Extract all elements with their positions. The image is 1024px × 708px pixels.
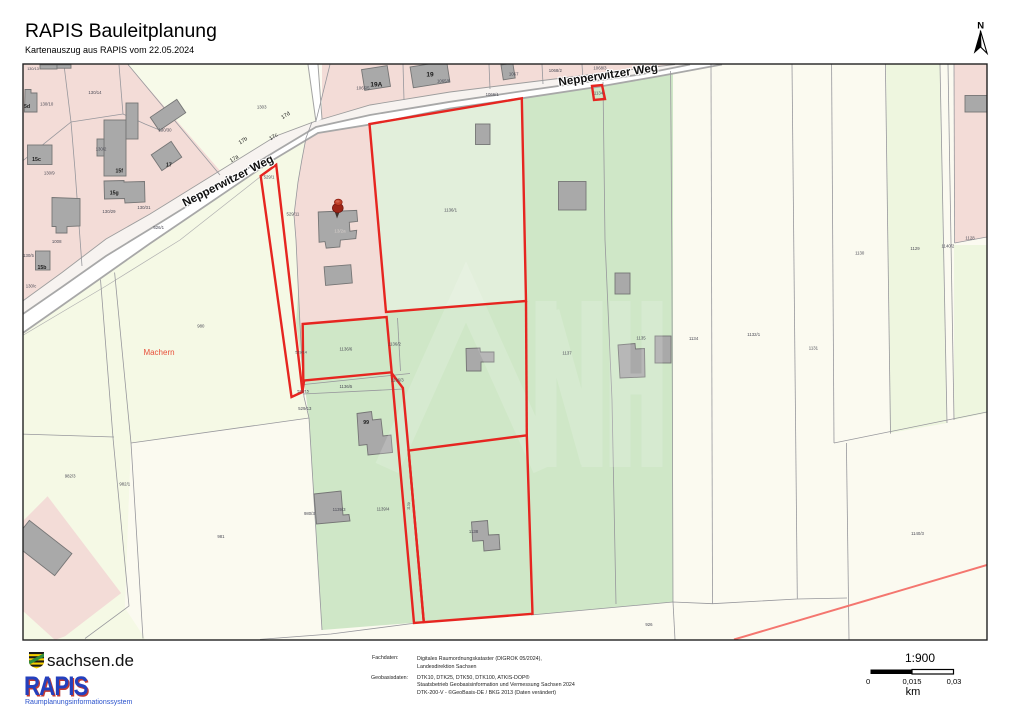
svg-text:130/13: 130/13 [27,67,39,71]
svg-text:1067: 1067 [509,71,519,76]
svg-text:130/29: 130/29 [102,209,116,214]
svg-text:1140/3: 1140/3 [911,531,924,536]
svg-text:981: 981 [217,534,225,539]
svg-text:1130: 1130 [855,251,865,256]
svg-text:1139/4: 1139/4 [377,506,390,511]
svg-text:1065/6: 1065/6 [437,78,451,83]
svg-text:17: 17 [166,162,172,168]
svg-text:980: 980 [197,324,205,329]
svg-text:1137: 1137 [562,351,572,356]
svg-text:980/3: 980/3 [304,511,315,516]
svg-text:1134: 1134 [689,336,699,341]
svg-text:15c: 15c [32,157,41,163]
svg-text:15f: 15f [115,169,123,175]
svg-text:1066/1: 1066/1 [486,92,500,97]
svg-text:1140/2: 1140/2 [941,244,954,249]
svg-text:1139/3: 1139/3 [333,507,346,512]
svg-text:529/1: 529/1 [264,175,275,180]
svg-text:15g: 15g [110,190,119,196]
svg-text:1136/1: 1136/1 [444,208,457,213]
svg-text:1135: 1135 [636,336,646,341]
svg-text:1129: 1129 [910,246,920,251]
svg-text:529/14: 529/14 [295,351,307,355]
svg-text:19A: 19A [370,81,382,88]
svg-text:1136/3: 1136/3 [391,377,404,382]
svg-text:99: 99 [363,420,369,426]
svg-text:1134: 1134 [594,91,604,96]
svg-text:1132/1: 1132/1 [747,332,760,337]
svg-text:130/14: 130/14 [88,90,102,95]
svg-text:982/1: 982/1 [119,482,130,487]
svg-text:1068/2: 1068/2 [549,68,563,73]
svg-text:926: 926 [645,622,653,627]
svg-text:982/3: 982/3 [65,474,76,479]
svg-text:1128: 1128 [965,236,975,241]
svg-text:1139: 1139 [406,502,411,510]
svg-text:1008: 1008 [52,239,62,244]
svg-text:5d: 5d [24,104,30,110]
svg-text:1136/2: 1136/2 [388,342,401,347]
svg-text:1131: 1131 [809,345,819,350]
svg-text:130/10: 130/10 [40,102,54,107]
svg-text:1065/5: 1065/5 [356,86,370,91]
svg-text:130/c: 130/c [26,284,37,289]
svg-text:1303: 1303 [257,105,267,110]
svg-text:526/1: 526/1 [153,225,164,230]
svg-text:529/15: 529/15 [297,390,309,394]
svg-text:130/30: 130/30 [158,128,172,133]
svg-text:130/5: 130/5 [23,253,34,258]
svg-text:130/2: 130/2 [96,147,107,152]
svg-text:sachsen.de: sachsen.de [47,651,134,670]
svg-text:1136/5: 1136/5 [339,384,352,389]
svg-text:13/2a: 13/2a [334,229,346,234]
svg-text:15b: 15b [38,265,47,271]
svg-text:529/13: 529/13 [298,406,312,411]
svg-text:529/11: 529/11 [286,212,299,217]
svg-text:130/31: 130/31 [137,205,151,210]
svg-text:Machern: Machern [143,348,174,357]
svg-text:1136/6: 1136/6 [339,346,352,351]
svg-text:1138: 1138 [469,529,479,534]
svg-text:19: 19 [426,72,434,79]
svg-text:130/9: 130/9 [44,171,55,176]
